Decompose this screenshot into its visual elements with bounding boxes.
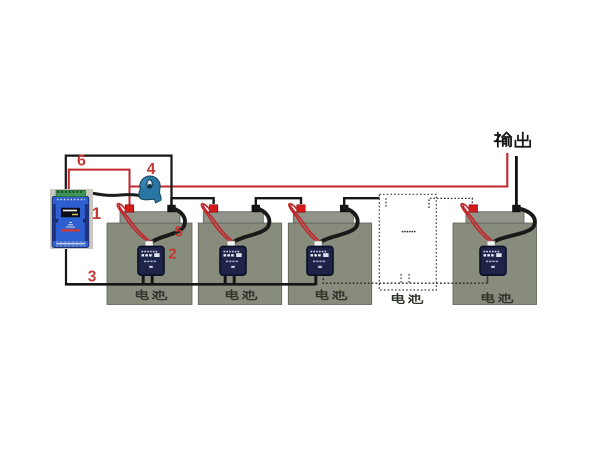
svg-text:6: 6 [77, 153, 86, 170]
svg-text:5: 5 [174, 224, 182, 241]
svg-text:3: 3 [88, 269, 97, 286]
svg-text:4: 4 [147, 161, 156, 178]
svg-text:2: 2 [168, 246, 176, 263]
svg-text:1: 1 [92, 204, 101, 223]
